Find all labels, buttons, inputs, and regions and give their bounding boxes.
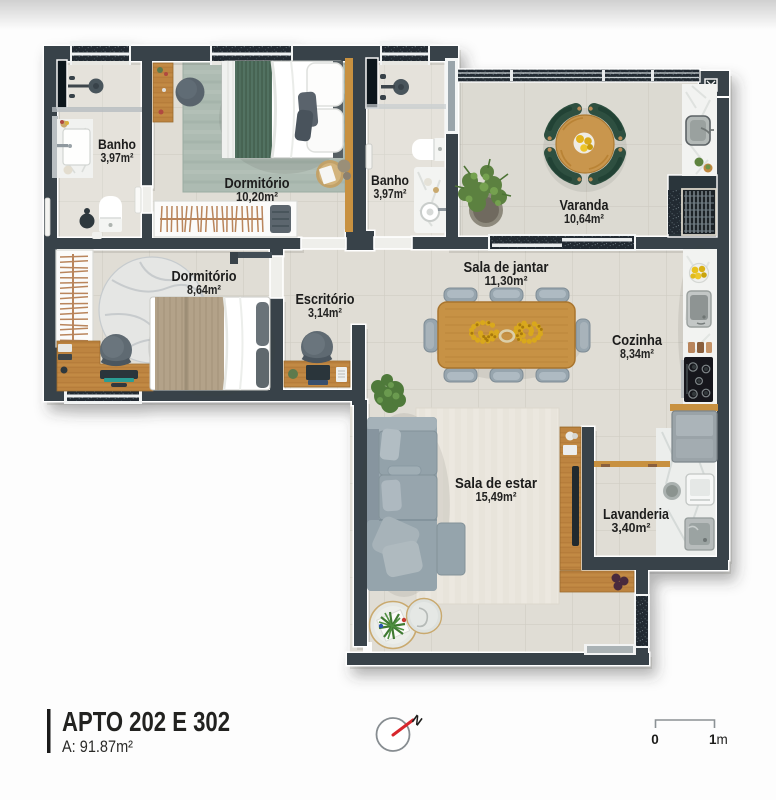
svg-text:Banho: Banho: [371, 172, 409, 188]
svg-text:3,97m²: 3,97m²: [374, 187, 407, 201]
svg-text:10,64m²: 10,64m²: [564, 211, 605, 226]
svg-text:APTO 202 E 302: APTO 202 E 302: [62, 706, 230, 737]
svg-text:3,14m²: 3,14m²: [308, 305, 343, 320]
svg-text:3,97m²: 3,97m²: [101, 151, 134, 165]
svg-text:11,30m²: 11,30m²: [485, 273, 529, 288]
svg-text:1m: 1m: [709, 732, 728, 747]
svg-text:0: 0: [651, 732, 659, 747]
svg-text:10,20m²: 10,20m²: [236, 189, 279, 204]
svg-text:8,64m²: 8,64m²: [187, 282, 222, 297]
svg-text:8,34m²: 8,34m²: [620, 346, 655, 361]
svg-text:3,40m²: 3,40m²: [612, 520, 652, 535]
svg-text:A: 91.87m²: A: 91.87m²: [62, 738, 133, 756]
svg-text:15,49m²: 15,49m²: [476, 489, 518, 504]
svg-text:Banho: Banho: [98, 136, 136, 152]
